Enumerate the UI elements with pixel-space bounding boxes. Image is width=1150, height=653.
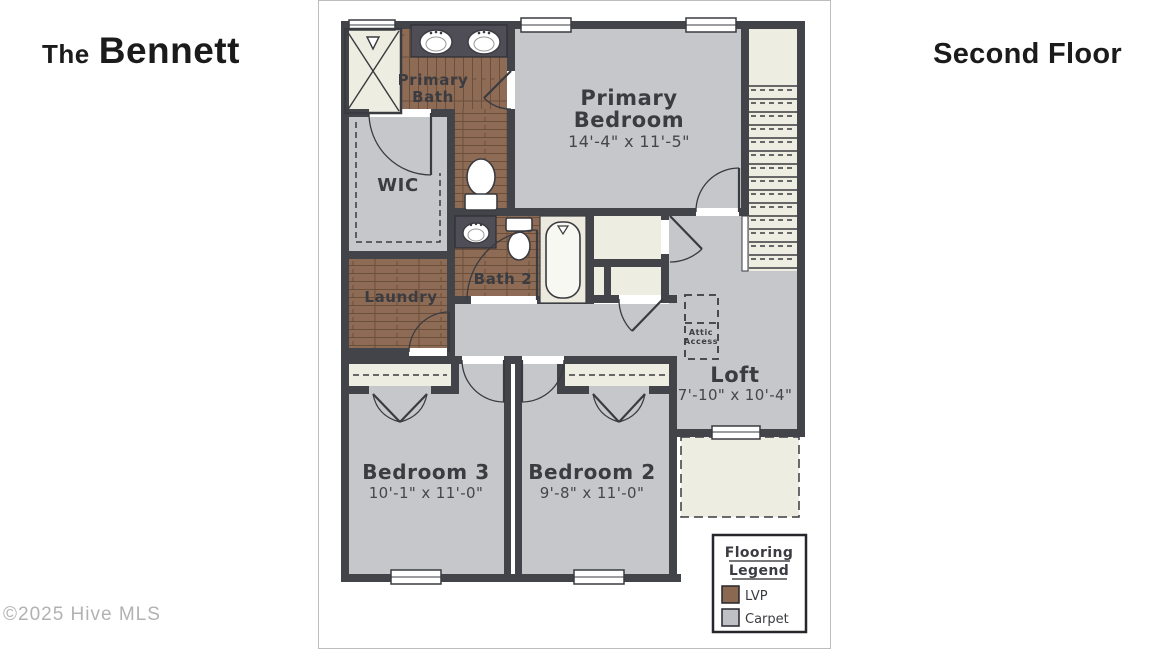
attic-access-label: Attic: [689, 328, 713, 337]
primary-bath-label2: Bath: [412, 88, 454, 106]
bedroom2-label: Bedroom 2: [528, 460, 656, 484]
legend-label-carpet: Carpet: [745, 612, 789, 627]
stairs-area: [749, 29, 797, 271]
laundry-label: Laundry: [364, 288, 437, 306]
bedroom3-window: [391, 570, 441, 584]
bedroom2-dims: 9'-8" x 11'-0": [540, 484, 645, 502]
stair-railing: [742, 216, 748, 271]
bath2-label: Bath 2: [474, 270, 533, 288]
bedroom2-window: [574, 570, 624, 584]
bedroom3-label: Bedroom 3: [362, 460, 490, 484]
legend-title-line2: Legend: [729, 563, 789, 579]
loft-dims: 7'-10" x 10'-4": [678, 386, 793, 404]
loft-label: Loft: [710, 363, 759, 387]
copyright-watermark: ©2025 Hive MLS: [3, 604, 161, 626]
water-closet-toilet: [465, 159, 497, 210]
bathtub: [540, 216, 586, 303]
legend-label-lvp: LVP: [745, 589, 768, 604]
legend-swatch-carpet: [722, 609, 739, 626]
legend-swatch-lvp: [722, 586, 739, 603]
plan-title-prefix: The: [42, 39, 90, 70]
sink-icon: [463, 223, 489, 243]
legend-title-line1: Flooring: [725, 545, 794, 561]
sink-icon: [420, 30, 452, 54]
primary-bedroom-window-right: [686, 18, 736, 32]
primary-bedroom-dims: 14'-4" x 11'-5": [568, 132, 690, 151]
primary-bedroom-label: Primary: [580, 86, 677, 110]
hallway-floor: [455, 304, 669, 356]
plan-title: The Bennett: [42, 30, 240, 72]
bath2-vanity: [455, 216, 496, 248]
primary-bedroom-window-left: [521, 18, 571, 32]
primary-bath-label: Primary: [398, 71, 469, 89]
linen-closet1-floor: [594, 216, 661, 259]
loft-window: [712, 426, 760, 439]
sink-icon: [468, 30, 500, 54]
floor-label: Second Floor: [933, 38, 1122, 71]
floorplan-svg: Primary Bath Primary Bedroom 14'-4" x 11…: [319, 1, 830, 648]
bath2-toilet: [506, 218, 532, 260]
bedroom3-dims: 10'-1" x 11'-0": [369, 484, 484, 502]
floorplan-image: Primary Bath Primary Bedroom 14'-4" x 11…: [318, 0, 831, 649]
flooring-legend: Flooring Legend LVP Carpet: [713, 535, 806, 632]
wic-label: WIC: [377, 175, 419, 196]
attic-access-label2: Access: [684, 337, 718, 346]
plan-title-name: Bennett: [99, 30, 240, 72]
hall-floor-upper: [669, 216, 749, 271]
primary-vanity: [411, 25, 507, 57]
open-roof-area: [681, 437, 799, 517]
primary-bedroom-label2: Bedroom: [574, 108, 685, 132]
